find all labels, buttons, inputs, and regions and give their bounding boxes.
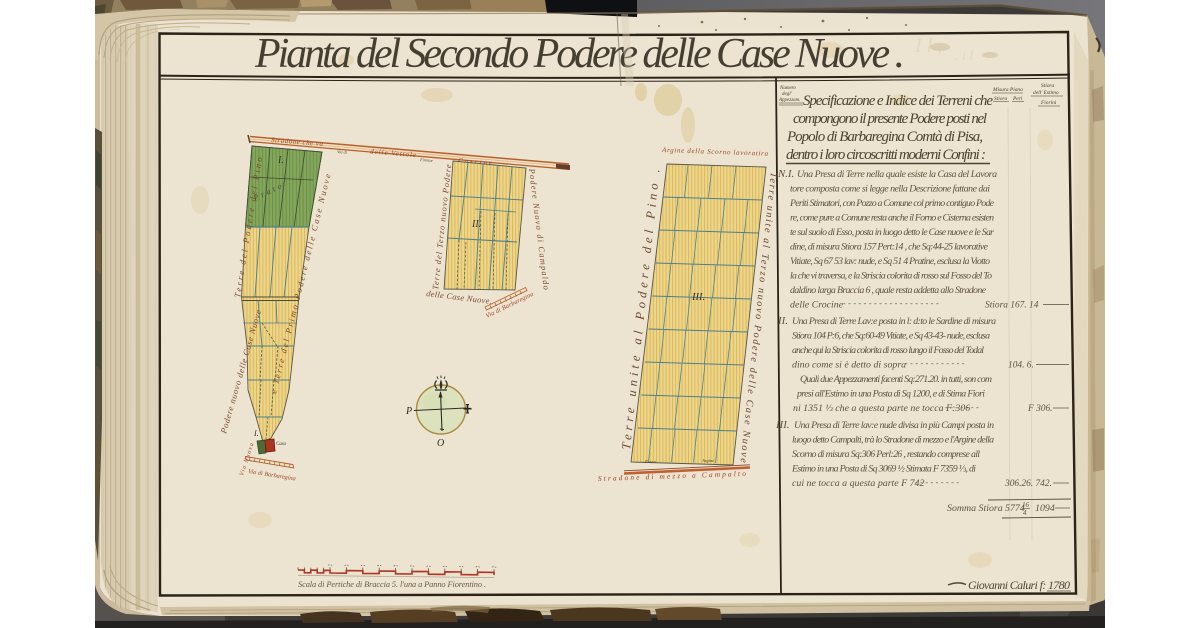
svg-text:. i l: . i l xyxy=(955,49,973,64)
svg-text:Scorno di misura Sq:306 Perl:2: Scorno di misura Sq:306 Perl:26 , restan… xyxy=(792,449,980,460)
svg-text:III.: III. xyxy=(775,419,790,431)
svg-text:Stiora 104 P:6, che Sq:60-49 V: Stiora 104 P:6, che Sq:60-49 Vitiate, e … xyxy=(792,331,990,342)
svg-text:I.: I. xyxy=(277,155,284,166)
svg-text:Stiora 167. 14: Stiora 167. 14 xyxy=(985,301,1039,311)
svg-text:Quali due Appezzamenti facenti: Quali due Appezzamenti facenti Sq:271.20… xyxy=(800,374,992,385)
svg-text:dino come si è detto di sopra: dino come si è detto di sopra xyxy=(792,360,906,371)
svg-text:O: O xyxy=(437,438,444,449)
svg-text:F 306.: F 306. xyxy=(1027,404,1052,414)
svg-text:Stiora: Stiora xyxy=(994,96,1007,102)
svg-text:cui ne tocca a questa parte F: cui ne tocca a questa parte F 742 xyxy=(792,478,925,489)
svg-text:Via di: Via di xyxy=(337,149,348,155)
svg-text:compongono il presente Podere: compongono il presente Podere posti nel xyxy=(793,111,987,127)
svg-text:la che vi traversa, e la Stris: la che vi traversa, e la Striscia colori… xyxy=(790,271,992,282)
svg-text:Periti Stimatori, con Pozzo a: Periti Stimatori, con Pozzo a Comune col… xyxy=(789,198,995,209)
svg-text:104. 6.: 104. 6. xyxy=(1008,361,1034,371)
svg-text:Pianta del Secondo Podere dell: Pianta del Secondo Podere delle Case Nuo… xyxy=(254,31,905,77)
svg-text:Somma Stiora: Somma Stiora xyxy=(947,503,1003,514)
svg-text:daldino larga Braccia 6 , qual: daldino larga Braccia 6 , quale resta ad… xyxy=(790,285,987,296)
svg-text:306.26. 742.: 306.26. 742. xyxy=(1004,479,1052,489)
svg-text:Stiora: Stiora xyxy=(1041,83,1054,89)
svg-text:ni 1351 ⅓ che a questa parte n: ni 1351 ⅓ che a questa parte ne tocca F:… xyxy=(793,403,970,414)
svg-text:N.I.: N.I. xyxy=(777,168,794,180)
svg-text:Vitiate, Sq 67 53 lav: nude, e: Vitiate, Sq 67 53 lav: nude, e Sq 51 4 P… xyxy=(790,256,990,267)
svg-text:tore composta come si legge ne: tore composta come si legge nella Descri… xyxy=(790,184,990,195)
svg-text:te sul suolo di Esso, posta in: te sul suolo di Esso, posta in luogo det… xyxy=(790,227,994,238)
svg-text:anche qui la Striscia colorita: anche qui la Striscia colorita di rosso … xyxy=(792,345,984,356)
svg-text:Estimo in una Posta di Sq 3069: Estimo in una Posta di Sq 3069 ½ Stimata… xyxy=(791,464,976,475)
svg-text:Una Presa di Terre nella quale: Una Presa di Terre nella quale esiste la… xyxy=(797,169,997,180)
svg-text:------------: ------------ xyxy=(905,359,967,368)
svg-text:dentro i loro circoscritti mod: dentro i loro circoscritti moderni Confi… xyxy=(786,147,986,163)
svg-text:Argine: Argine xyxy=(701,458,714,463)
svg-text:delle Crocine: delle Crocine xyxy=(790,300,844,311)
svg-text:I.: I. xyxy=(253,429,259,438)
svg-text:Scala di Pertiche di Braccia 5: Scala di Pertiche di Braccia 5. l'una a … xyxy=(298,580,486,589)
svg-text:-------------------: ------------------- xyxy=(843,299,941,308)
svg-text:P: P xyxy=(405,406,412,417)
svg-text:Giovanni Caluri f: 1780: Giovanni Caluri f: 1780 xyxy=(968,578,1070,592)
svg-text:---------: --------- xyxy=(915,478,961,487)
svg-text:Misura Piana: Misura Piana xyxy=(992,87,1023,93)
svg-text:Specificazione e Indice dei Te: Specificazione e Indice dei Terreni che xyxy=(803,93,993,109)
svg-text:1094: 1094 xyxy=(1035,503,1055,514)
svg-text:degl': degl' xyxy=(782,92,793,97)
svg-text:Fiorini: Fiorini xyxy=(1040,100,1057,106)
svg-text:Fosso: Fosso xyxy=(644,459,657,464)
svg-text:16: 16 xyxy=(1022,501,1030,509)
svg-text:4: 4 xyxy=(1023,509,1027,517)
svg-text:Perl: Perl xyxy=(1012,96,1023,102)
svg-text:II.: II. xyxy=(471,219,481,230)
svg-text:-------: ------- xyxy=(945,403,981,412)
svg-text:re, come pure a Comune resta a: re, come pure a Comune resta anche il Fo… xyxy=(790,213,994,224)
svg-text:dell' Estimo: dell' Estimo xyxy=(1033,90,1059,96)
svg-text:Una Presa di Terre Lav:e posta: Una Presa di Terre Lav:e posta in l: d:t… xyxy=(792,316,996,327)
svg-text:luogo detto Campalti, trà lo S: luogo detto Campalti, trà lo Stradone di… xyxy=(792,435,994,446)
svg-text:II.: II. xyxy=(777,315,788,327)
svg-text:III.: III. xyxy=(691,292,705,303)
svg-text:Casa: Casa xyxy=(276,442,286,447)
svg-text:Numero: Numero xyxy=(779,86,796,91)
svg-text:dine, di misura Stiora 157 Per: dine, di misura Stiora 157 Pert:14 , che… xyxy=(790,242,989,253)
svg-text:Appezzam.: Appezzam. xyxy=(778,98,801,103)
svg-text:Popolo di Barbaregina Comtà di: Popolo di Barbaregina Comtà di Pisa, xyxy=(786,129,983,145)
svg-text:Una Presa di Terre lav:e nude: Una Presa di Terre lav:e nude divisa in … xyxy=(794,420,994,431)
svg-text:presi all'Estimo in una Posta: presi all'Estimo in una Posta di Sq 1200… xyxy=(796,389,985,400)
